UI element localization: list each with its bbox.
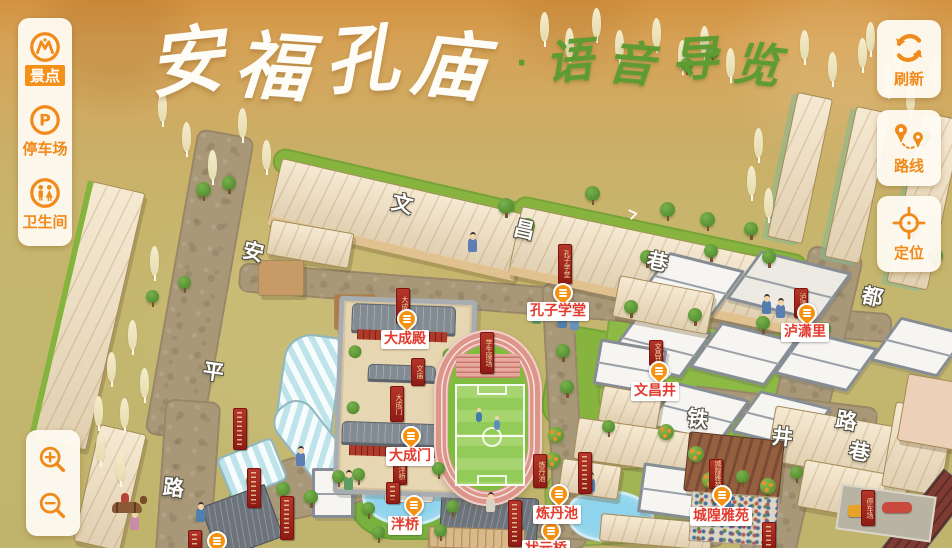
street-char: 路 [161, 471, 185, 503]
round-tree [556, 344, 570, 358]
audio-marker-dachengdian[interactable] [397, 309, 417, 329]
flag-banner: 大成门 [390, 386, 404, 422]
player-figure [494, 420, 500, 430]
flag-banner [386, 482, 400, 504]
flag-banner: 文庙 [411, 358, 425, 386]
poplar-tree [140, 368, 149, 398]
flag-banner: 停车场 [861, 490, 875, 526]
round-tree [222, 176, 236, 190]
title-char: 福 [232, 5, 327, 118]
round-tree [362, 502, 375, 515]
locate-icon [891, 205, 927, 241]
page-subtitle: 语音导览 [545, 22, 797, 91]
round-tree [146, 290, 159, 303]
flag-banner [233, 408, 247, 450]
person-figure [762, 300, 771, 314]
poplar-tree [128, 320, 137, 350]
orange-fruit-tree [688, 446, 704, 462]
poplar-tree [866, 22, 875, 52]
locate-button[interactable]: 定位 [877, 196, 941, 272]
poplar-tree [262, 140, 271, 170]
street-char: 平 [201, 355, 226, 388]
round-tree [304, 490, 318, 504]
poplar-tree [107, 352, 116, 382]
street-char: 都 [859, 279, 886, 313]
building-northeast [767, 92, 833, 244]
title-separator: · [516, 46, 527, 81]
round-tree [178, 276, 191, 289]
round-tree [744, 222, 758, 236]
poi-label-chenghuangyayuan[interactable]: 城隍雅苑 [690, 507, 752, 526]
tree [346, 401, 359, 414]
poplar-tree [94, 396, 103, 426]
round-tree [688, 308, 702, 322]
person-figure [468, 238, 477, 252]
poplar-tree [116, 452, 125, 482]
horse-figure [112, 502, 142, 513]
poi-label-wenchangjing[interactable]: 文昌井 [631, 382, 679, 401]
round-tree [434, 524, 447, 537]
round-tree [704, 244, 718, 258]
goal-box [477, 384, 507, 395]
round-tree [736, 470, 749, 483]
poi-label-dachengdian[interactable]: 大成殿 [381, 330, 429, 349]
flag-banner [578, 452, 592, 494]
legend-panel: 景点 P 停车场 卫生间 [18, 18, 72, 246]
svg-text:P: P [39, 111, 51, 130]
round-tree [756, 316, 770, 330]
round-tree [762, 250, 776, 264]
parking-icon: P [28, 103, 62, 137]
person-figure [776, 304, 785, 318]
orange-fruit-tree [760, 478, 776, 494]
audio-marker-luxiaoli[interactable] [797, 303, 817, 323]
control-label: 定位 [894, 242, 924, 263]
flag-banner [280, 496, 294, 540]
round-tree [790, 466, 803, 479]
sidebar-item-label: 景点 [25, 65, 65, 86]
poi-label-dachengmen[interactable]: 大成门 [386, 447, 434, 466]
route-button[interactable]: 路线 [877, 110, 941, 186]
poplar-tree [150, 246, 159, 276]
title-char: 览 [730, 24, 800, 99]
control-label: 刷新 [894, 68, 924, 89]
poplar-tree [764, 188, 773, 218]
round-tree [498, 198, 514, 214]
sidebar-item-parking[interactable]: P 停车场 [18, 103, 72, 159]
restroom-icon [28, 176, 62, 210]
player-figure [476, 412, 482, 422]
route-icon [890, 120, 928, 154]
sidebar-item-restroom[interactable]: 卫生间 [18, 176, 72, 232]
page-title: 安福孔庙 [148, 2, 500, 109]
poi-label-zhuangyuanqiao[interactable]: 状元桥 [522, 540, 570, 548]
title-char: 音 [605, 23, 674, 97]
street-char: 井 [770, 420, 794, 452]
person-figure [130, 516, 139, 530]
person-figure [296, 452, 305, 466]
poi-label-liandanchi[interactable]: 炼丹池 [533, 505, 581, 524]
poplar-tree [208, 150, 217, 180]
audio-marker-liandanchi[interactable] [549, 484, 569, 504]
round-tree [602, 420, 615, 433]
poplar-tree [828, 52, 837, 82]
audio-marker-kongzixuetang[interactable] [553, 283, 573, 303]
round-tree [372, 526, 385, 539]
round-tree [196, 182, 211, 197]
flag-banner [762, 522, 776, 548]
flag-banner: 孔子学堂 [558, 244, 572, 284]
sidebar-item-label: 卫生间 [22, 211, 67, 232]
title-char: 语 [542, 19, 611, 93]
zoom-in-button[interactable] [36, 443, 70, 477]
title-char: 孔 [320, 0, 415, 110]
inner-gate-roof [368, 364, 437, 382]
audio-marker-chenghuangyayuan[interactable] [712, 485, 732, 505]
tree [348, 345, 361, 358]
hut [258, 260, 304, 296]
round-tree [660, 202, 675, 217]
round-tree [700, 212, 715, 227]
title-char: 导 [669, 18, 736, 90]
round-tree [624, 300, 638, 314]
title-char: 安 [143, 0, 242, 113]
person-figure [344, 476, 353, 490]
football-pitch [455, 384, 525, 486]
flag-banner [247, 468, 261, 508]
person-figure [196, 508, 205, 522]
flag-banner [188, 530, 202, 548]
audio-marker-zhuangyuanqiao[interactable] [541, 521, 561, 541]
scenic-spot-icon [28, 30, 62, 64]
flag-banner: 学生操场 [480, 332, 494, 374]
poplar-tree [747, 166, 756, 196]
audio-marker-dachengmen[interactable] [401, 426, 421, 446]
zoom-panel [26, 430, 80, 536]
title-char: 庙 [406, 3, 505, 119]
round-tree [560, 380, 574, 394]
map-canvas[interactable]: 大成殿 文庙 大成门 学生操场 孔子学堂 泸潇里 文昌井 泮桥 炼丹池 城隍雅苑… [0, 0, 952, 548]
poi-label-panqiao[interactable]: 泮桥 [388, 516, 422, 535]
poplar-tree [754, 128, 763, 158]
person-figure [486, 498, 495, 512]
poplar-tree [120, 398, 129, 428]
round-tree [352, 468, 365, 481]
poplar-tree [800, 30, 809, 60]
orange-fruit-tree [548, 427, 564, 443]
street-char: 铁 [685, 402, 709, 434]
flag-banner: 炼丹池 [533, 454, 547, 488]
round-tree [446, 500, 459, 513]
sidebar-item-scenic-spots[interactable]: 景点 [18, 30, 72, 86]
round-tree [585, 186, 600, 201]
refresh-icon [890, 29, 928, 67]
sidebar-item-label: 停车场 [22, 138, 67, 159]
round-tree [276, 482, 290, 496]
audio-marker[interactable] [207, 531, 227, 548]
audio-marker-panqiao[interactable] [404, 495, 424, 515]
poi-label-luxiaoli[interactable]: 泸潇里 [781, 323, 829, 342]
flag-banner [508, 500, 522, 547]
orange-fruit-tree [658, 424, 674, 440]
control-label: 路线 [894, 155, 924, 176]
poplar-tree [182, 122, 191, 152]
orange-fruit-tree [545, 452, 561, 468]
poi-label-kongzixuetang[interactable]: 孔子学堂 [527, 302, 589, 321]
car-red [882, 502, 912, 513]
zoom-out-button[interactable] [36, 489, 70, 523]
building [897, 373, 952, 450]
goal-box [477, 475, 507, 486]
poplar-tree [96, 432, 105, 462]
audio-marker-wenchangjing[interactable] [649, 361, 669, 381]
refresh-button[interactable]: 刷新 [877, 20, 941, 98]
